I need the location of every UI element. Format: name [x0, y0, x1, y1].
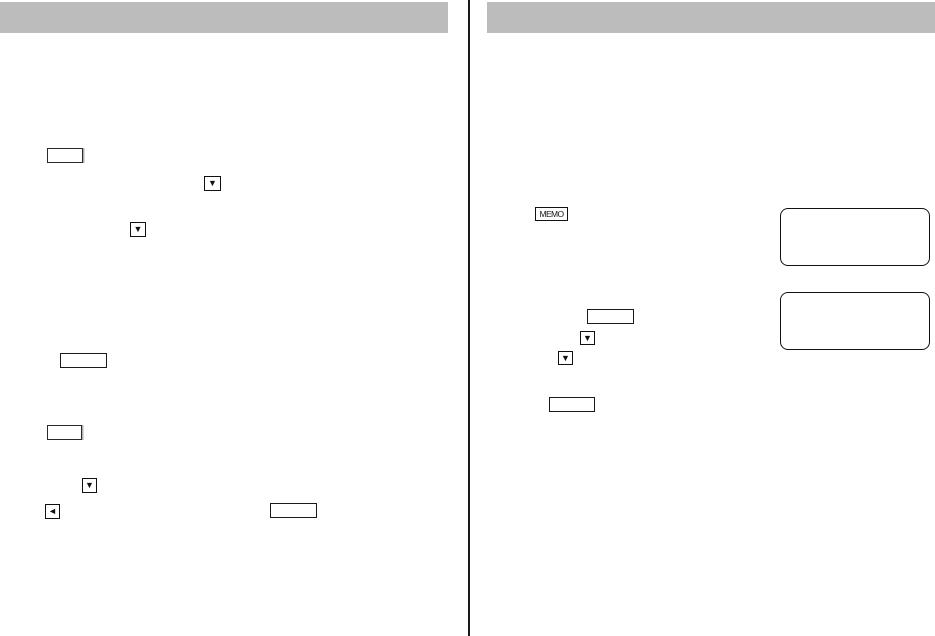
column-divider-rule	[468, 0, 470, 636]
key-callout-box-6	[549, 397, 595, 412]
key-callout-box-3	[47, 425, 82, 440]
down-triangle-glyph: ▼	[208, 179, 217, 188]
down-arrow-button-icon: ▼	[130, 222, 146, 237]
key-callout-box-4	[270, 503, 317, 518]
left-triangle-glyph: ◄	[48, 507, 57, 516]
left-section-title-bar	[0, 2, 448, 33]
key-callout-box-1	[47, 148, 83, 163]
down-arrow-button-icon: ▼	[558, 351, 573, 365]
down-arrow-button-icon: ▼	[580, 331, 595, 345]
manual-page: ▼ ▼ ▼ ◄ MEMO ▼ ▼	[0, 0, 935, 636]
down-triangle-glyph: ▼	[583, 334, 592, 343]
right-section-title-bar	[487, 2, 935, 33]
left-arrow-button-icon: ◄	[45, 504, 60, 519]
down-triangle-glyph: ▼	[561, 354, 570, 363]
memo-badge: MEMO	[535, 207, 568, 221]
memo-badge-label: MEMO	[539, 209, 563, 219]
down-triangle-glyph: ▼	[85, 481, 94, 490]
key-callout-box-2	[60, 353, 107, 368]
down-arrow-button-icon: ▼	[204, 176, 221, 191]
key-callout-box-5	[587, 309, 634, 324]
down-triangle-glyph: ▼	[134, 225, 143, 234]
down-arrow-button-icon: ▼	[82, 478, 97, 493]
note-box-2	[780, 292, 930, 350]
note-box-1	[780, 208, 930, 266]
